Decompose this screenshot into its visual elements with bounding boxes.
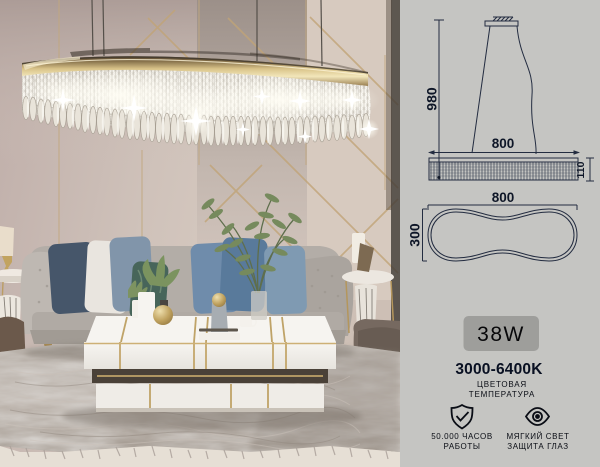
svg-text:50.000 ЧАСОВ: 50.000 ЧАСОВ xyxy=(431,432,493,441)
svg-text:МЯГКИЙ СВЕТ: МЯГКИЙ СВЕТ xyxy=(506,432,569,441)
svg-text:3000-6400K: 3000-6400K xyxy=(455,361,543,378)
svg-text:ТЕМПЕРАТУРА: ТЕМПЕРАТУРА xyxy=(469,390,535,399)
svg-text:110: 110 xyxy=(575,161,587,178)
svg-text:38W: 38W xyxy=(477,323,525,346)
svg-text:ЦВЕТОВАЯ: ЦВЕТОВАЯ xyxy=(477,380,527,389)
svg-text:300: 300 xyxy=(407,223,423,247)
svg-text:РАБОТЫ: РАБОТЫ xyxy=(443,442,480,451)
svg-text:800: 800 xyxy=(492,136,515,151)
svg-text:980: 980 xyxy=(424,87,440,111)
svg-text:ЗАЩИТА ГЛАЗ: ЗАЩИТА ГЛАЗ xyxy=(507,442,568,451)
svg-text:800: 800 xyxy=(492,190,515,205)
